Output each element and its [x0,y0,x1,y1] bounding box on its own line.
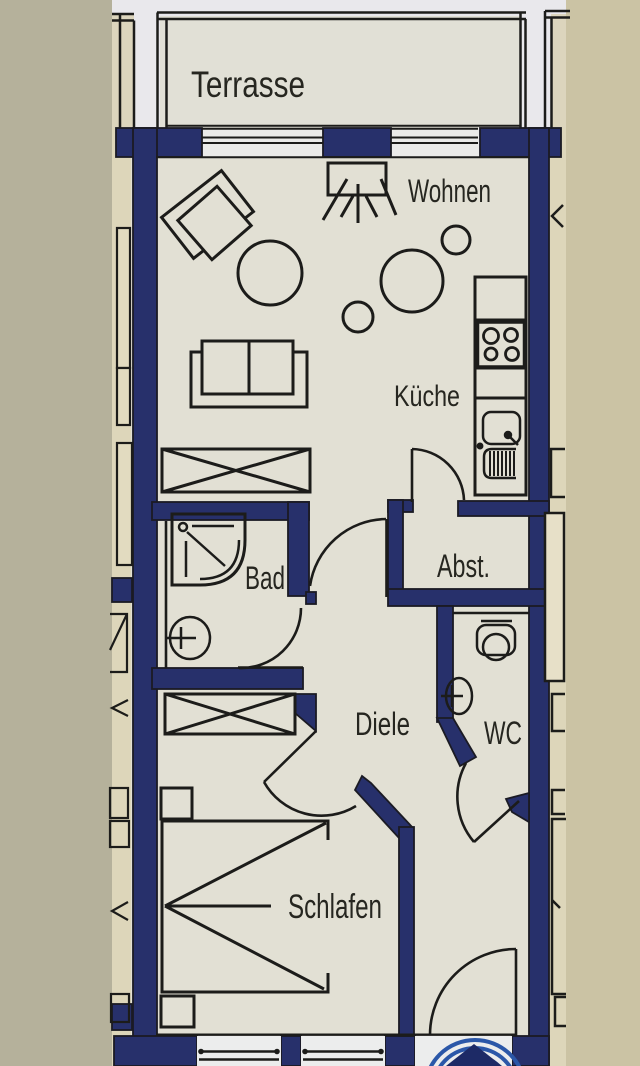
svg-text:Terrasse: Terrasse [191,64,305,105]
svg-text:Küche: Küche [394,380,460,413]
svg-text:Diele: Diele [355,706,410,742]
svg-text:Abst.: Abst. [437,548,490,584]
svg-text:Schlafen: Schlafen [288,888,382,926]
svg-text:Wohnen: Wohnen [408,173,491,209]
svg-text:WC: WC [484,715,522,751]
svg-text:Bad: Bad [245,560,285,596]
